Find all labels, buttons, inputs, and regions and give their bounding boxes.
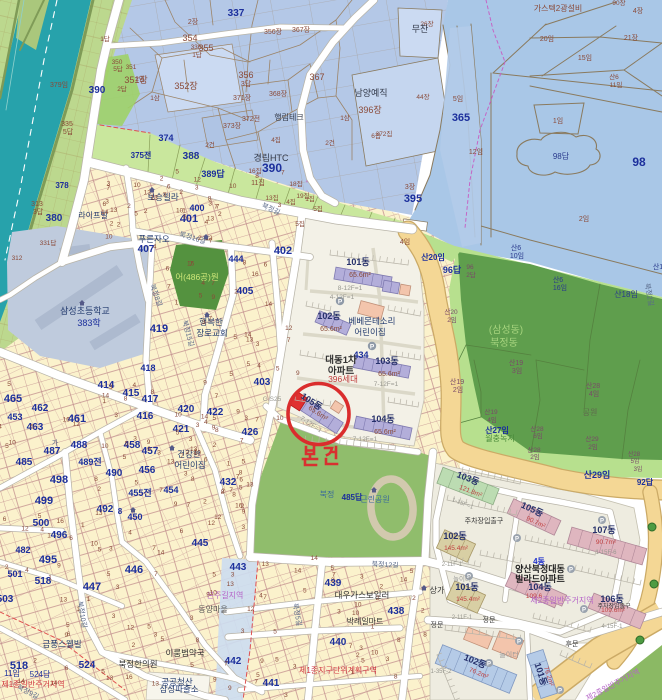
svg-text:9: 9 bbox=[147, 446, 151, 453]
svg-text:G.S25: G.S25 bbox=[263, 396, 282, 403]
svg-text:5: 5 bbox=[273, 628, 277, 635]
svg-text:산6: 산6 bbox=[553, 275, 563, 284]
svg-text:5: 5 bbox=[256, 672, 260, 679]
svg-text:5: 5 bbox=[303, 588, 307, 595]
svg-text:6: 6 bbox=[239, 477, 243, 484]
svg-text:102동: 102동 bbox=[443, 531, 466, 541]
svg-text:상가: 상가 bbox=[430, 585, 445, 595]
svg-text:5: 5 bbox=[276, 366, 280, 373]
svg-text:3: 3 bbox=[154, 632, 158, 639]
svg-text:6: 6 bbox=[167, 183, 171, 190]
svg-text:산20임: 산20임 bbox=[421, 252, 445, 262]
svg-text:4: 4 bbox=[201, 280, 205, 287]
svg-text:6임: 6임 bbox=[533, 432, 543, 440]
svg-text:454: 454 bbox=[163, 485, 178, 495]
svg-text:335: 335 bbox=[61, 121, 73, 128]
svg-text:산20: 산20 bbox=[444, 307, 458, 316]
svg-text:2: 2 bbox=[186, 449, 190, 456]
svg-text:1답: 1답 bbox=[100, 35, 110, 43]
svg-text:3: 3 bbox=[284, 692, 288, 699]
svg-text:402: 402 bbox=[274, 245, 292, 257]
svg-text:13집: 13집 bbox=[265, 194, 278, 202]
svg-text:산19: 산19 bbox=[484, 407, 498, 416]
svg-text:10: 10 bbox=[229, 183, 237, 190]
svg-text:3: 3 bbox=[133, 436, 137, 443]
svg-text:5: 5 bbox=[101, 669, 105, 676]
svg-text:356: 356 bbox=[238, 70, 253, 80]
svg-text:145.4m²: 145.4m² bbox=[444, 545, 469, 552]
svg-text:3: 3 bbox=[359, 645, 363, 652]
svg-text:3: 3 bbox=[157, 450, 161, 457]
svg-text:12: 12 bbox=[214, 514, 222, 521]
svg-text:P: P bbox=[569, 567, 573, 573]
svg-text:6: 6 bbox=[264, 261, 268, 268]
svg-text:396장: 396장 bbox=[358, 105, 381, 115]
svg-text:북정한의원: 북정한의원 bbox=[118, 659, 157, 669]
svg-text:8: 8 bbox=[124, 396, 128, 403]
svg-text:7: 7 bbox=[332, 572, 336, 579]
svg-text:6: 6 bbox=[102, 201, 106, 208]
svg-text:16: 16 bbox=[235, 503, 243, 510]
svg-text:8: 8 bbox=[118, 507, 123, 516]
svg-text:대동1차: 대동1차 bbox=[325, 354, 357, 366]
svg-text:101동: 101동 bbox=[455, 582, 478, 592]
svg-text:7: 7 bbox=[281, 169, 285, 176]
svg-text:10: 10 bbox=[9, 440, 17, 447]
svg-text:503: 503 bbox=[0, 594, 14, 605]
svg-text:453: 453 bbox=[7, 412, 22, 422]
svg-text:10임: 10임 bbox=[510, 252, 524, 260]
svg-text:7: 7 bbox=[152, 545, 156, 552]
svg-text:5: 5 bbox=[212, 415, 216, 422]
svg-text:산28: 산28 bbox=[530, 424, 544, 433]
svg-text:10: 10 bbox=[101, 443, 109, 450]
svg-text:65.6m²: 65.6m² bbox=[374, 429, 396, 436]
svg-text:2-11F-1: 2-11F-1 bbox=[452, 615, 473, 621]
svg-text:44장: 44장 bbox=[416, 92, 429, 101]
svg-text:490: 490 bbox=[106, 468, 123, 479]
svg-text:어린이집: 어린이집 bbox=[174, 460, 205, 470]
svg-text:7: 7 bbox=[215, 393, 219, 400]
svg-text:13: 13 bbox=[262, 561, 270, 568]
svg-text:4-12F=1: 4-12F=1 bbox=[330, 294, 355, 301]
svg-text:524: 524 bbox=[79, 660, 96, 671]
svg-text:13: 13 bbox=[246, 482, 254, 489]
svg-text:6: 6 bbox=[65, 665, 69, 672]
svg-text:이룸범약국: 이룸범약국 bbox=[165, 648, 204, 658]
svg-text:2: 2 bbox=[144, 208, 148, 215]
svg-text:7: 7 bbox=[159, 487, 163, 494]
svg-text:9: 9 bbox=[211, 294, 215, 301]
svg-text:산6: 산6 bbox=[609, 72, 619, 81]
svg-text:3: 3 bbox=[116, 584, 120, 591]
svg-text:4: 4 bbox=[132, 382, 136, 389]
svg-text:380: 380 bbox=[46, 213, 63, 224]
svg-text:373장: 373장 bbox=[223, 121, 242, 130]
svg-text:5: 5 bbox=[107, 571, 111, 578]
svg-text:산29: 산29 bbox=[585, 434, 599, 443]
svg-text:베베몬테소리: 베베몬테소리 bbox=[349, 316, 396, 326]
svg-text:396세대: 396세대 bbox=[328, 374, 358, 384]
svg-text:103동: 103동 bbox=[375, 356, 398, 366]
svg-text:390: 390 bbox=[262, 161, 282, 175]
svg-text:9: 9 bbox=[236, 409, 240, 416]
svg-text:P: P bbox=[558, 688, 562, 694]
svg-text:12임: 12임 bbox=[469, 148, 483, 156]
svg-text:10: 10 bbox=[133, 182, 141, 189]
svg-text:2: 2 bbox=[421, 608, 425, 615]
svg-text:16: 16 bbox=[251, 271, 259, 278]
svg-text:2: 2 bbox=[376, 595, 380, 602]
svg-text:3: 3 bbox=[195, 184, 199, 191]
svg-text:3: 3 bbox=[112, 613, 116, 620]
svg-text:5: 5 bbox=[246, 361, 250, 368]
svg-text:16: 16 bbox=[57, 518, 65, 525]
svg-text:주차장입출구: 주차장입출구 bbox=[597, 602, 631, 610]
svg-text:3: 3 bbox=[278, 202, 282, 209]
svg-text:12: 12 bbox=[21, 525, 29, 532]
svg-text:9: 9 bbox=[296, 370, 300, 377]
svg-text:북정동: 북정동 bbox=[490, 337, 518, 349]
svg-text:13: 13 bbox=[167, 459, 175, 466]
svg-text:2답: 2답 bbox=[466, 271, 476, 279]
svg-text:13: 13 bbox=[152, 681, 160, 688]
svg-text:14: 14 bbox=[400, 577, 408, 584]
svg-text:3: 3 bbox=[256, 341, 260, 348]
svg-text:5: 5 bbox=[147, 623, 151, 630]
svg-text:1임: 1임 bbox=[553, 117, 563, 125]
svg-text:2: 2 bbox=[110, 221, 114, 228]
svg-text:374: 374 bbox=[158, 133, 173, 143]
svg-text:7: 7 bbox=[254, 679, 258, 686]
svg-text:8: 8 bbox=[94, 476, 98, 483]
svg-text:5: 5 bbox=[241, 458, 245, 465]
svg-text:6: 6 bbox=[180, 528, 184, 535]
svg-text:빌라드아파트: 빌라드아파트 bbox=[515, 573, 565, 584]
svg-text:2임: 2임 bbox=[135, 75, 145, 83]
svg-text:368장: 368장 bbox=[269, 89, 288, 98]
svg-text:9: 9 bbox=[203, 380, 207, 387]
svg-text:498: 498 bbox=[50, 474, 68, 486]
svg-text:산18임: 산18임 bbox=[614, 289, 638, 299]
svg-text:5: 5 bbox=[134, 211, 138, 218]
svg-text:어린이집: 어린이집 bbox=[354, 327, 385, 337]
svg-text:정문: 정문 bbox=[483, 615, 496, 624]
svg-text:5: 5 bbox=[361, 658, 365, 665]
svg-text:P: P bbox=[515, 536, 519, 542]
svg-text:10: 10 bbox=[371, 650, 379, 657]
svg-text:2: 2 bbox=[203, 499, 207, 506]
svg-text:1: 1 bbox=[371, 624, 375, 631]
svg-text:356장: 356장 bbox=[264, 27, 283, 36]
svg-text:5: 5 bbox=[98, 547, 102, 554]
svg-text:산28: 산28 bbox=[628, 450, 641, 458]
svg-text:7: 7 bbox=[240, 437, 244, 444]
svg-text:350: 350 bbox=[112, 59, 123, 66]
svg-text:485: 485 bbox=[16, 457, 33, 468]
svg-text:근린공원: 근린공원 bbox=[360, 494, 389, 504]
svg-text:삼성초등학교: 삼성초등학교 bbox=[60, 306, 110, 316]
svg-text:2: 2 bbox=[160, 175, 164, 182]
svg-text:5: 5 bbox=[233, 334, 237, 341]
svg-text:12: 12 bbox=[285, 325, 293, 332]
svg-text:6: 6 bbox=[204, 456, 208, 463]
svg-text:379임: 379임 bbox=[50, 81, 68, 89]
svg-text:10: 10 bbox=[210, 590, 218, 597]
svg-text:395: 395 bbox=[404, 193, 422, 205]
svg-text:P: P bbox=[370, 344, 375, 351]
svg-text:월충녹지: 월충녹지 bbox=[485, 433, 514, 443]
svg-text:9: 9 bbox=[174, 501, 178, 508]
svg-text:65.6m²: 65.6m² bbox=[378, 371, 400, 378]
svg-text:3: 3 bbox=[114, 412, 118, 419]
svg-text:2: 2 bbox=[97, 486, 101, 493]
svg-text:5: 5 bbox=[199, 293, 203, 300]
svg-text:8: 8 bbox=[196, 637, 200, 644]
svg-text:2: 2 bbox=[213, 442, 217, 449]
svg-text:9: 9 bbox=[57, 563, 61, 570]
svg-text:5: 5 bbox=[134, 479, 138, 486]
svg-text:106동: 106동 bbox=[600, 594, 623, 604]
svg-text:4동: 4동 bbox=[533, 557, 545, 566]
svg-text:5: 5 bbox=[175, 168, 179, 175]
svg-text:104동: 104동 bbox=[371, 414, 394, 424]
svg-text:13: 13 bbox=[110, 207, 118, 214]
svg-text:440: 440 bbox=[330, 637, 347, 648]
svg-text:2: 2 bbox=[221, 488, 225, 495]
svg-text:354: 354 bbox=[182, 33, 197, 43]
svg-text:12: 12 bbox=[208, 520, 216, 527]
svg-text:2: 2 bbox=[193, 448, 197, 455]
svg-text:101동: 101동 bbox=[346, 257, 369, 267]
svg-text:3: 3 bbox=[337, 609, 341, 616]
svg-text:8: 8 bbox=[394, 674, 398, 681]
svg-text:공원: 공원 bbox=[583, 408, 598, 417]
svg-text:403: 403 bbox=[254, 377, 271, 388]
svg-text:3: 3 bbox=[360, 574, 364, 581]
svg-text:7-12F=1: 7-12F=1 bbox=[374, 381, 399, 388]
svg-text:12: 12 bbox=[73, 421, 81, 428]
svg-text:5임: 5임 bbox=[453, 95, 463, 103]
svg-text:5: 5 bbox=[123, 454, 127, 461]
svg-text:8: 8 bbox=[243, 260, 247, 267]
svg-text:3: 3 bbox=[241, 628, 245, 635]
svg-text:대우가스보일러: 대우가스보일러 bbox=[335, 590, 390, 600]
svg-text:14: 14 bbox=[157, 550, 165, 557]
svg-text:21장: 21장 bbox=[624, 33, 639, 42]
svg-text:4장: 4장 bbox=[633, 6, 644, 15]
svg-text:2: 2 bbox=[33, 658, 37, 665]
svg-text:1: 1 bbox=[87, 596, 91, 603]
svg-text:북정: 북정 bbox=[320, 489, 335, 499]
svg-text:2: 2 bbox=[179, 189, 183, 196]
svg-text:14: 14 bbox=[244, 332, 252, 339]
svg-text:4: 4 bbox=[259, 593, 263, 600]
svg-text:495: 495 bbox=[39, 554, 57, 566]
svg-text:6: 6 bbox=[166, 266, 170, 273]
svg-text:488: 488 bbox=[71, 440, 88, 451]
svg-text:16: 16 bbox=[63, 417, 71, 424]
svg-text:놀이터: 놀이터 bbox=[453, 574, 471, 583]
svg-text:90.7m²: 90.7m² bbox=[596, 539, 617, 546]
svg-text:놀이터: 놀이터 bbox=[499, 650, 518, 659]
svg-text:8: 8 bbox=[191, 476, 195, 483]
svg-text:1: 1 bbox=[227, 461, 231, 468]
svg-text:375전: 375전 bbox=[131, 150, 152, 160]
svg-text:16: 16 bbox=[125, 674, 133, 681]
svg-text:447: 447 bbox=[83, 581, 101, 593]
svg-text:5임: 5임 bbox=[631, 457, 640, 465]
svg-text:행림테크: 행림테크 bbox=[274, 112, 303, 122]
svg-text:20임: 20임 bbox=[540, 35, 554, 43]
svg-text:10: 10 bbox=[105, 233, 113, 240]
svg-text:3장: 3장 bbox=[405, 182, 416, 191]
svg-text:13: 13 bbox=[227, 581, 235, 588]
svg-text:12: 12 bbox=[127, 624, 135, 631]
svg-text:산28: 산28 bbox=[586, 381, 600, 390]
svg-text:5: 5 bbox=[30, 424, 34, 431]
svg-text:가: 가 bbox=[52, 438, 59, 447]
svg-text:동양마을: 동양마을 bbox=[198, 605, 227, 614]
svg-text:2: 2 bbox=[379, 584, 383, 591]
svg-text:14: 14 bbox=[294, 568, 302, 575]
svg-text:15임: 15임 bbox=[578, 54, 592, 62]
svg-text:312: 312 bbox=[12, 255, 23, 262]
svg-text:4임: 4임 bbox=[400, 238, 410, 246]
svg-text:496: 496 bbox=[51, 530, 68, 541]
svg-text:3: 3 bbox=[208, 200, 212, 207]
svg-text:7: 7 bbox=[255, 417, 259, 424]
svg-text:2-11F-1: 2-11F-1 bbox=[442, 562, 463, 568]
svg-text:1삼: 1삼 bbox=[150, 93, 160, 102]
svg-text:1-35F-2: 1-35F-2 bbox=[430, 669, 452, 675]
svg-text:444: 444 bbox=[228, 254, 243, 264]
svg-text:98답: 98답 bbox=[553, 151, 570, 161]
svg-text:524답: 524답 bbox=[30, 669, 51, 679]
svg-text:P: P bbox=[487, 661, 491, 667]
svg-text:1답: 1답 bbox=[192, 51, 202, 59]
svg-text:3: 3 bbox=[293, 664, 297, 671]
svg-text:P: P bbox=[517, 639, 521, 645]
svg-text:4: 4 bbox=[25, 567, 29, 574]
svg-text:438: 438 bbox=[388, 606, 405, 617]
svg-text:산19: 산19 bbox=[509, 358, 523, 367]
svg-text:3: 3 bbox=[163, 192, 167, 199]
svg-text:367장: 367장 bbox=[292, 25, 311, 34]
svg-text:2: 2 bbox=[356, 652, 360, 659]
svg-text:12: 12 bbox=[194, 177, 202, 184]
svg-text:12: 12 bbox=[247, 606, 255, 613]
svg-text:P: P bbox=[582, 607, 586, 613]
svg-text:372전: 372전 bbox=[242, 114, 260, 123]
svg-text:2임: 2임 bbox=[588, 443, 598, 451]
svg-text:3: 3 bbox=[138, 599, 142, 606]
svg-text:8: 8 bbox=[183, 213, 187, 220]
svg-text:5: 5 bbox=[125, 441, 129, 448]
svg-text:후문: 후문 bbox=[566, 640, 579, 648]
svg-text:14: 14 bbox=[50, 680, 58, 687]
svg-text:7: 7 bbox=[224, 661, 228, 668]
svg-text:14: 14 bbox=[102, 393, 110, 400]
svg-text:7: 7 bbox=[287, 337, 291, 344]
svg-text:5: 5 bbox=[212, 572, 216, 579]
svg-text:4임: 4임 bbox=[487, 416, 497, 424]
svg-text:가스텍2광설비: 가스텍2광설비 bbox=[534, 3, 583, 13]
svg-text:337: 337 bbox=[228, 8, 245, 19]
svg-text:4-15F-1: 4-15F-1 bbox=[601, 624, 623, 630]
svg-text:3: 3 bbox=[202, 319, 206, 326]
svg-text:455전: 455전 bbox=[128, 487, 151, 498]
svg-text:박례일마트: 박례일마트 bbox=[347, 616, 384, 626]
svg-text:3: 3 bbox=[107, 181, 111, 188]
svg-text:441: 441 bbox=[263, 678, 280, 689]
svg-text:2임: 2임 bbox=[453, 386, 463, 394]
svg-text:3: 3 bbox=[189, 436, 193, 443]
svg-text:5: 5 bbox=[190, 662, 194, 669]
svg-text:7: 7 bbox=[180, 453, 184, 460]
svg-text:65.6m²: 65.6m² bbox=[320, 326, 342, 333]
svg-text:1: 1 bbox=[81, 522, 85, 529]
svg-text:450: 450 bbox=[127, 512, 142, 522]
svg-text:정문: 정문 bbox=[431, 620, 444, 629]
svg-text:10: 10 bbox=[354, 601, 362, 608]
svg-text:419: 419 bbox=[150, 323, 168, 335]
svg-text:3답: 3답 bbox=[33, 207, 44, 216]
svg-text:3: 3 bbox=[109, 546, 113, 553]
svg-text:4: 4 bbox=[40, 527, 44, 534]
svg-text:5: 5 bbox=[275, 656, 279, 663]
svg-text:1: 1 bbox=[350, 669, 354, 676]
svg-text:331답: 331답 bbox=[40, 239, 57, 247]
svg-text:313: 313 bbox=[31, 201, 43, 208]
svg-text:9: 9 bbox=[260, 658, 264, 665]
svg-text:465: 465 bbox=[4, 393, 22, 405]
svg-text:90장: 90장 bbox=[612, 0, 625, 7]
svg-text:9: 9 bbox=[228, 685, 232, 692]
svg-text:경림HTC: 경림HTC bbox=[253, 152, 289, 163]
svg-text:405: 405 bbox=[237, 286, 254, 297]
svg-text:372집: 372집 bbox=[376, 130, 393, 138]
svg-text:487: 487 bbox=[44, 446, 61, 457]
svg-text:98: 98 bbox=[632, 155, 646, 169]
svg-text:10: 10 bbox=[276, 415, 284, 422]
svg-text:2임: 2임 bbox=[530, 453, 540, 461]
svg-text:무찬: 무찬 bbox=[412, 24, 429, 34]
svg-text:416: 416 bbox=[137, 411, 154, 422]
svg-text:9: 9 bbox=[64, 632, 68, 639]
svg-text:산6: 산6 bbox=[511, 243, 521, 252]
svg-text:5집: 5집 bbox=[295, 220, 305, 228]
svg-text:10: 10 bbox=[352, 610, 360, 617]
svg-text:8: 8 bbox=[150, 389, 154, 396]
svg-text:96: 96 bbox=[466, 264, 474, 271]
svg-text:5: 5 bbox=[176, 429, 180, 436]
svg-text:14: 14 bbox=[265, 301, 273, 308]
svg-text:13: 13 bbox=[150, 195, 158, 202]
svg-text:501: 501 bbox=[7, 569, 22, 579]
svg-text:16임: 16임 bbox=[553, 284, 567, 292]
svg-text:14: 14 bbox=[18, 678, 26, 685]
svg-text:장로교회: 장로교회 bbox=[196, 328, 227, 338]
svg-text:3: 3 bbox=[184, 470, 188, 477]
svg-text:383학: 383학 bbox=[77, 318, 100, 328]
svg-text:7: 7 bbox=[214, 204, 218, 211]
svg-text:96답: 96답 bbox=[443, 264, 462, 275]
svg-text:389답: 389답 bbox=[201, 168, 225, 179]
svg-text:14: 14 bbox=[101, 209, 109, 216]
svg-text:2: 2 bbox=[117, 221, 121, 228]
svg-text:8: 8 bbox=[397, 637, 401, 644]
